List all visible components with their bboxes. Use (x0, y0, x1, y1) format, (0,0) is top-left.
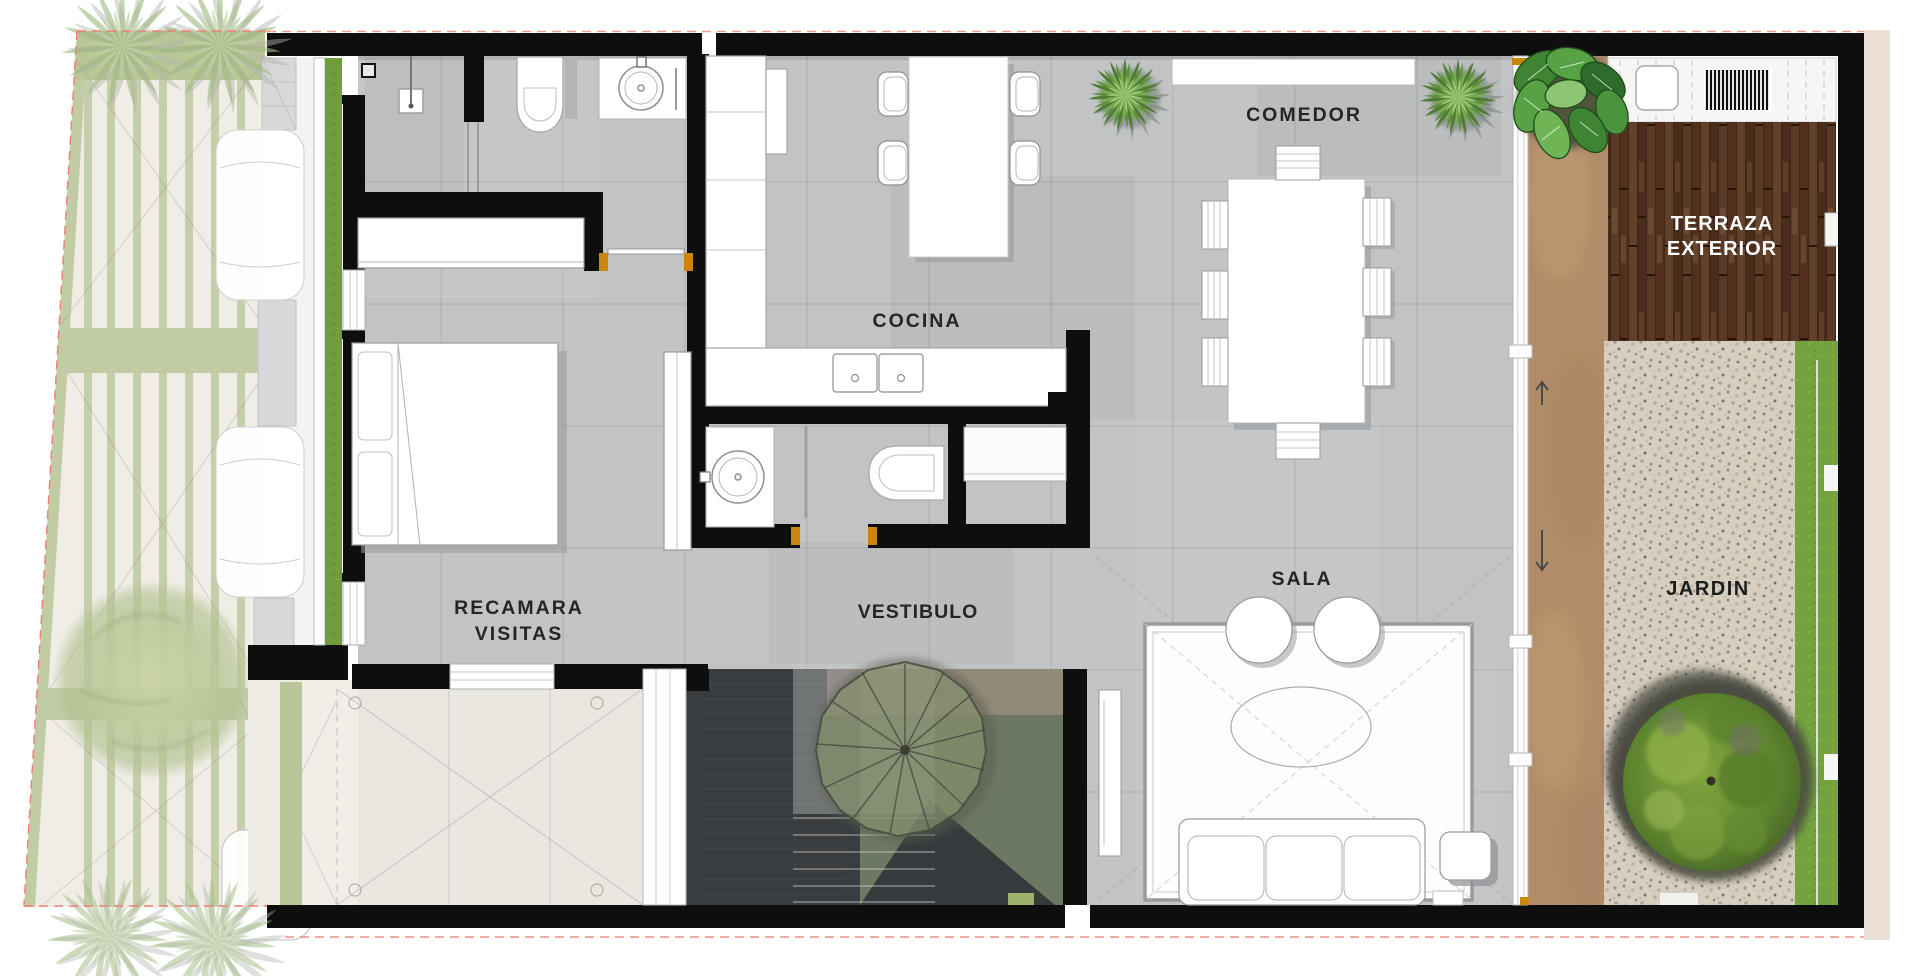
svg-text:VISITAS: VISITAS (475, 623, 563, 645)
svg-text:EXTERIOR: EXTERIOR (1667, 238, 1777, 260)
svg-text:TERRAZA: TERRAZA (1671, 213, 1774, 235)
svg-text:COCINA: COCINA (873, 310, 962, 332)
svg-text:RECAMARA: RECAMARA (454, 597, 584, 619)
svg-text:COMEDOR: COMEDOR (1246, 104, 1362, 126)
svg-text:SALA: SALA (1271, 568, 1332, 590)
svg-text:VESTIBULO: VESTIBULO (858, 601, 979, 623)
svg-text:JARDIN: JARDIN (1666, 578, 1749, 600)
